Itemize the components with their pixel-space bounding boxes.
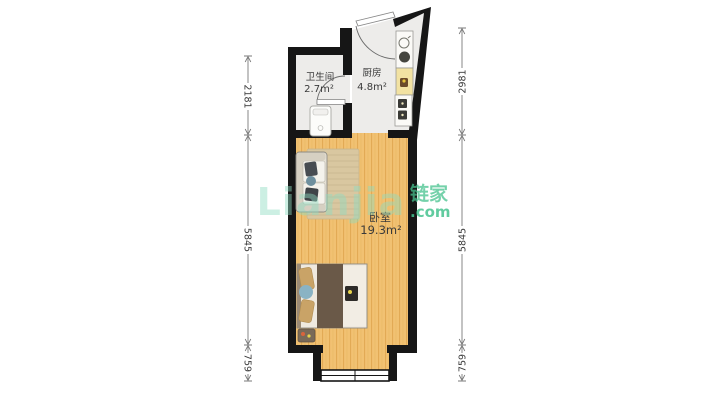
watermark: Lianjia 链家 .com: [257, 180, 451, 224]
watermark-domain: .com: [410, 203, 451, 221]
bathtub: [310, 106, 331, 136]
dimension-chain-left: 2181 5845 759: [241, 56, 255, 381]
round-pillow: [299, 285, 313, 299]
nightstand: [298, 329, 315, 342]
floor-plan-canvas: 卫生间 2.7m² 厨房 4.8m² 卧室 19.3m² 2181 5845 7…: [0, 0, 710, 400]
bathroom-area: 2.7m²: [304, 84, 334, 95]
wall-bay-left: [313, 345, 321, 381]
wall-bay-right: [389, 345, 397, 381]
bedroom-area: 19.3m²: [360, 223, 401, 237]
dim-right-middle: 5845: [458, 228, 469, 252]
watermark-wordmark: Lianjia: [257, 180, 406, 224]
dim-right-bottom: 759: [458, 354, 469, 372]
bay-window: [321, 370, 389, 381]
wall-bathroom-right-upper: [343, 55, 352, 75]
floor-plan-page: 卫生间 2.7m² 厨房 4.8m² 卧室 19.3m² 2181 5845 7…: [0, 0, 710, 400]
pot-icon: [399, 52, 410, 63]
sofa-pillow: [304, 161, 318, 177]
dimension-chain-right: 2981 5845 759: [455, 28, 469, 381]
wall-kitchen-bottom: [388, 130, 409, 138]
dim-left-top: 2181: [242, 84, 253, 108]
bathroom-label: 卫生间: [306, 71, 335, 83]
dim-left-middle: 5845: [242, 228, 253, 252]
wall-entry-stub: [340, 28, 352, 55]
kitchen-area: 4.8m²: [357, 82, 387, 93]
dim-right-top: 2981: [458, 69, 469, 93]
duvet: [317, 264, 343, 328]
watermark-cn: 链家: [410, 182, 449, 205]
kitchen-counter: [395, 31, 413, 126]
kitchen-label: 厨房: [362, 67, 381, 79]
dim-left-bottom: 759: [242, 354, 253, 372]
bed-tray: [345, 286, 358, 301]
